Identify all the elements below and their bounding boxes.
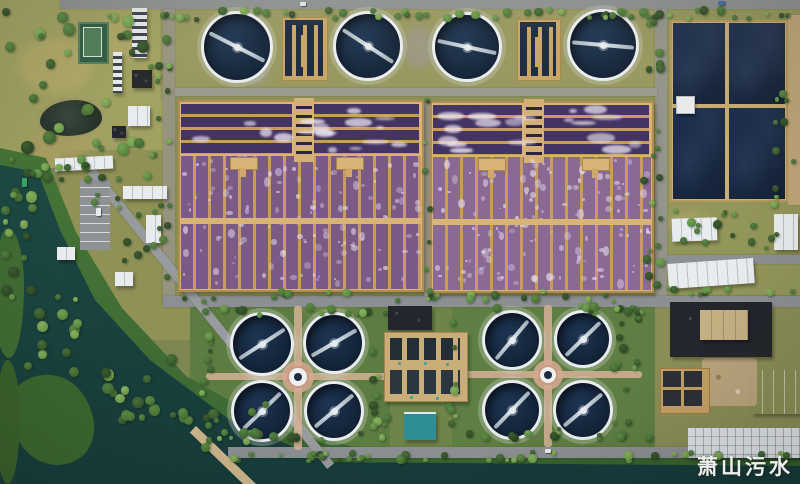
tree (731, 212, 737, 218)
tree (115, 394, 124, 403)
tree (205, 332, 213, 340)
building-teal-roof (404, 412, 436, 440)
tree (624, 308, 632, 316)
foam-speckle (338, 205, 343, 212)
tree (651, 452, 659, 460)
tree (134, 251, 142, 259)
tree (43, 131, 55, 143)
tree (358, 431, 363, 436)
building-blue-roof (752, 370, 800, 414)
tree (132, 397, 143, 408)
tree (21, 141, 33, 153)
tree (450, 386, 459, 395)
clarifier-tank (554, 310, 612, 368)
foam-speckle (605, 206, 612, 212)
foam-speckle (626, 234, 628, 238)
tree (166, 354, 177, 365)
tree (23, 233, 30, 240)
foam-speckle (489, 179, 494, 183)
foam-speckle (479, 267, 483, 270)
clarifier-center-hub (234, 44, 241, 51)
tree (423, 458, 428, 463)
foam-patch (345, 118, 372, 127)
tree (481, 433, 490, 442)
foam-speckle (323, 232, 329, 240)
foam-speckle (615, 195, 622, 200)
foam-speckle (446, 266, 448, 270)
foam-speckle (195, 196, 197, 199)
foam-speckle (304, 262, 311, 268)
tree (262, 9, 270, 17)
foam-speckle (211, 186, 215, 191)
tree (551, 450, 557, 456)
tree (724, 286, 731, 293)
tree (616, 334, 623, 341)
tree (658, 216, 663, 221)
foam-speckle (444, 160, 450, 169)
tree (453, 414, 457, 418)
tree (521, 295, 526, 300)
foam-speckle (313, 234, 316, 238)
foam-speckle (203, 225, 207, 229)
foam-patch (312, 123, 329, 132)
tree (26, 286, 36, 296)
tree (597, 437, 601, 441)
foam-speckle (313, 273, 316, 277)
foam-patch (244, 121, 256, 125)
pond-cell (729, 23, 785, 104)
sludge-tank-cell (663, 390, 681, 406)
tree (64, 49, 71, 56)
facility-equipment-dot (446, 363, 449, 366)
clarifier-center-hub (259, 408, 266, 415)
foam-speckle (532, 215, 535, 219)
tree (37, 321, 48, 332)
foam-speckle (415, 200, 419, 205)
watermark: 萧山污水 (697, 451, 793, 481)
tree (164, 222, 171, 229)
building-white-roof (57, 247, 75, 260)
tree (46, 59, 56, 69)
foam-speckle (535, 179, 541, 188)
clarifier-center-hub (365, 43, 372, 50)
tree (524, 430, 531, 437)
foam-speckle (542, 163, 544, 165)
foam-speckle (320, 203, 324, 209)
tree (528, 454, 537, 463)
tree (603, 293, 608, 298)
foam-speckle (643, 209, 648, 212)
tree (779, 13, 783, 17)
foam-speckle (617, 186, 621, 190)
foam-speckle (210, 168, 216, 172)
foam-speckle (395, 199, 399, 203)
tree (359, 309, 367, 317)
tree (73, 319, 82, 328)
tree (452, 345, 457, 350)
foam-speckle (523, 252, 527, 255)
tree (435, 293, 440, 298)
facility-equipment-dot (436, 397, 439, 400)
foam-speckle (458, 277, 460, 280)
foam-speckle (640, 229, 643, 232)
tree (624, 451, 633, 460)
tree (117, 33, 125, 41)
foam-speckle (576, 260, 580, 264)
tree (238, 306, 247, 315)
clarifier-tank (567, 9, 639, 81)
tree (791, 159, 796, 164)
tree (616, 433, 624, 441)
clarifier-center-hub (580, 407, 587, 414)
pond-cell (673, 108, 725, 199)
tree (34, 308, 45, 319)
foam-speckle (383, 266, 388, 269)
tree (283, 10, 288, 15)
foam-speckle (562, 203, 567, 206)
tree (62, 348, 71, 357)
tree (746, 16, 751, 21)
tree (55, 294, 61, 300)
tree (1, 206, 10, 215)
tree (422, 141, 426, 145)
foam-speckle (378, 268, 382, 271)
sludge-tank-cell (684, 390, 702, 406)
foam-speckle (617, 209, 620, 213)
tree (375, 13, 382, 20)
hub-center (294, 373, 302, 381)
tree (2, 8, 10, 16)
tree (209, 340, 213, 344)
foam-patch (438, 136, 458, 146)
foam-speckle (228, 229, 235, 238)
tree (129, 49, 136, 56)
distribution-header (520, 22, 556, 27)
tree (269, 432, 278, 441)
foam-speckle (341, 250, 347, 256)
foam-speckle (271, 239, 276, 245)
foam-speckle (534, 239, 536, 241)
tree (250, 428, 260, 438)
tree (149, 153, 154, 158)
clarifier-tank (201, 11, 273, 83)
tree (672, 452, 677, 457)
tree (139, 414, 145, 420)
foam-speckle (633, 265, 636, 267)
building-dark-roof (132, 70, 152, 88)
foam-speckle (378, 249, 380, 250)
tree (20, 220, 28, 228)
building-tan-roof (700, 310, 748, 340)
tree (21, 255, 26, 260)
tree (610, 363, 618, 371)
tree (558, 9, 564, 15)
foam-speckle (645, 264, 648, 267)
aeration-top-lanes (181, 104, 292, 154)
tree (339, 9, 347, 17)
tree (28, 204, 36, 212)
tree (651, 153, 656, 158)
foam-speckle (573, 185, 579, 190)
tree (656, 258, 665, 267)
clarifier-center-hub (331, 340, 338, 347)
foam-speckle (469, 172, 471, 174)
aeration-center-tower (524, 99, 544, 163)
tree (217, 436, 221, 440)
aeration-inlet-stem (240, 168, 246, 177)
tree (700, 6, 709, 15)
foam-speckle (435, 265, 440, 271)
tree (550, 432, 558, 440)
tree (455, 10, 463, 18)
hub-center (544, 371, 552, 379)
tree (205, 422, 212, 429)
tree (9, 294, 15, 300)
foam-speckle (535, 205, 539, 210)
tree (30, 171, 36, 177)
tree (655, 243, 661, 249)
tree (57, 309, 68, 320)
tree (427, 240, 431, 244)
foam-speckle (339, 191, 342, 194)
tree (156, 116, 161, 121)
tree (9, 157, 15, 163)
tree (619, 344, 628, 353)
foam-speckle (366, 277, 371, 282)
tree (773, 120, 778, 125)
building-apartment-slab (113, 52, 122, 93)
tree (8, 267, 19, 278)
distribution-center-channel (301, 35, 307, 67)
tree (165, 88, 171, 94)
foam-speckle (531, 275, 537, 282)
tree (117, 205, 122, 210)
tree (253, 7, 261, 15)
foam-speckle (359, 232, 365, 241)
tree (466, 430, 474, 438)
foam-speckle (343, 241, 347, 245)
foam-speckle (577, 209, 583, 219)
tree (772, 147, 780, 155)
facility-cells-top (390, 338, 460, 360)
foam-speckle (532, 162, 539, 168)
clarifier-center-hub (259, 341, 266, 348)
vehicle (22, 178, 27, 187)
foam-speckle (626, 192, 628, 195)
tree (625, 419, 632, 426)
foam-speckle (575, 214, 578, 216)
building-dark-roof (388, 306, 432, 330)
facility-equipment-dot (424, 362, 427, 365)
tree (422, 168, 428, 174)
building-white-roof (115, 272, 133, 286)
tree (655, 146, 660, 151)
tree (3, 219, 9, 225)
tree (395, 298, 400, 303)
parking-lot (80, 180, 110, 250)
clarifier-tank (482, 380, 542, 440)
facility-equipment-dot (398, 362, 401, 365)
tree (157, 226, 162, 231)
tree (257, 312, 262, 317)
clarifier-tank (333, 11, 403, 81)
foam-speckle (183, 249, 189, 257)
tree (107, 14, 112, 19)
foam-speckle (269, 263, 274, 270)
tree (194, 17, 198, 21)
grass-dapple (404, 26, 434, 68)
foam-patch (629, 141, 642, 148)
building-dark-roof (112, 126, 126, 138)
foam-speckle (605, 174, 610, 179)
road (175, 88, 657, 96)
tree (698, 292, 702, 296)
tree (211, 296, 216, 301)
foam-patch (587, 133, 615, 143)
foam-speckle (447, 191, 451, 194)
clarifier-center-hub (580, 336, 587, 343)
tree (82, 104, 94, 116)
tree (359, 455, 365, 461)
aerial-photo-wastewater-plant: 萧山污水 (0, 0, 800, 484)
foam-speckle (208, 199, 211, 201)
foam-speckle (376, 203, 382, 210)
tree (221, 429, 228, 436)
aeration-inlet-stem (592, 169, 598, 178)
pond-control-hut (676, 96, 695, 114)
tree (682, 451, 689, 458)
sludge-tank-cell (684, 371, 702, 387)
foam-speckle (415, 205, 422, 212)
tree (57, 12, 68, 23)
tree (448, 420, 455, 427)
clarifier-center-hub (509, 407, 516, 414)
tree (790, 289, 795, 294)
tree (122, 15, 134, 27)
tree (687, 218, 696, 227)
tree (145, 396, 154, 405)
tree (587, 15, 592, 20)
tree (369, 348, 376, 355)
aeration-inlet-stem (346, 168, 352, 177)
foam-speckle (268, 171, 272, 176)
clarifier-tank (482, 310, 542, 370)
tree (126, 412, 134, 420)
foam-speckle (303, 239, 306, 241)
facility-equipment-dot (410, 396, 413, 399)
tree (695, 8, 700, 13)
foam-speckle (406, 234, 411, 238)
tree (623, 387, 629, 393)
pond-cell (673, 23, 725, 104)
vehicle (96, 208, 101, 216)
foam-speckle (335, 280, 340, 287)
tree (150, 242, 157, 249)
foam-speckle (215, 281, 218, 285)
tree (373, 393, 379, 399)
tree (170, 412, 176, 418)
foam-speckle (275, 168, 281, 176)
foam-patch (391, 142, 407, 148)
tree (617, 8, 623, 14)
foam-patch (508, 140, 536, 144)
tree (424, 267, 428, 271)
foam-speckle (567, 185, 572, 190)
tree (202, 308, 209, 315)
foam-speckle (213, 268, 220, 274)
tree (64, 164, 71, 171)
building-white-roof (123, 186, 167, 199)
foam-speckle (481, 172, 488, 176)
foam-speckle (614, 181, 620, 185)
tree (325, 7, 331, 13)
tree (453, 382, 458, 387)
tree (345, 310, 351, 316)
foam-speckle (316, 278, 319, 280)
aeration-walkway (433, 219, 651, 225)
tree (95, 193, 99, 197)
tree (102, 383, 114, 395)
tree (365, 454, 370, 459)
foam-patch (514, 116, 536, 121)
tree (5, 42, 15, 52)
tree (346, 456, 352, 462)
tree (169, 14, 174, 19)
tree (166, 139, 171, 144)
tree (319, 437, 325, 443)
foam-speckle (401, 277, 404, 281)
tree (284, 290, 292, 298)
tree (651, 19, 657, 25)
foam-speckle (640, 189, 646, 198)
construction-area (702, 358, 757, 406)
tree (648, 249, 652, 253)
tree (643, 255, 651, 263)
tree (155, 62, 163, 70)
tree (220, 305, 228, 313)
tree (645, 434, 653, 442)
tree (42, 173, 51, 182)
foam-speckle (316, 185, 321, 192)
tree (84, 176, 91, 183)
foam-speckle (520, 175, 525, 183)
tree (230, 455, 237, 462)
tree (768, 235, 775, 242)
distribution-header (285, 20, 323, 25)
vehicle (545, 449, 551, 453)
tree (82, 162, 88, 168)
tree (779, 90, 787, 98)
aeration-inlet-stem (488, 169, 494, 178)
road (60, 0, 800, 9)
foam-speckle (229, 195, 232, 199)
tree (653, 281, 661, 289)
foam-speckle (323, 252, 328, 257)
foam-speckle (452, 175, 458, 184)
foam-speckle (482, 248, 488, 258)
foam-patch (592, 115, 622, 119)
tree (178, 408, 188, 418)
tree (686, 16, 691, 21)
vehicle (300, 2, 306, 6)
tree (289, 11, 295, 17)
tree (775, 97, 779, 101)
foam-speckle (280, 250, 286, 257)
tree (116, 176, 121, 181)
foam-speckle (275, 207, 279, 213)
tree (201, 443, 210, 452)
foam-patch (602, 145, 631, 153)
